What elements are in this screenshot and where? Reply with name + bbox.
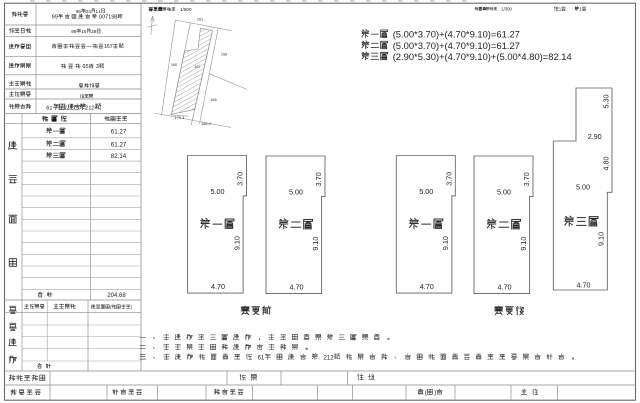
svg-text:167: 167 <box>194 65 200 69</box>
svg-text:82.14: 82.14 <box>111 153 127 160</box>
svg-text:161: 161 <box>197 17 203 21</box>
svg-text:168: 168 <box>221 53 227 57</box>
svg-text:2.90: 2.90 <box>588 132 602 141</box>
svg-text:4.80: 4.80 <box>602 157 611 171</box>
svg-text:(5.00*3.70)+(4.70*9.10)=61.27: (5.00*3.70)+(4.70*9.10)=61.27 <box>393 40 520 51</box>
svg-text:5.00: 5.00 <box>289 187 303 196</box>
svg-text:9: 9 <box>94 29 97 35</box>
svg-text:166-4: 166-4 <box>201 122 211 126</box>
svg-text:4.70: 4.70 <box>420 282 434 291</box>
svg-text:5.00: 5.00 <box>576 183 590 192</box>
svg-text:1/300: 1/300 <box>501 7 512 12</box>
svg-text:7: 7 <box>110 44 113 50</box>
svg-text:61.27: 61.27 <box>111 128 127 135</box>
svg-text:9.10: 9.10 <box>311 237 320 251</box>
svg-text:8: 8 <box>114 15 117 21</box>
svg-text:4.70: 4.70 <box>290 283 304 292</box>
svg-text:160: 160 <box>171 63 177 67</box>
svg-text:(5.00*3.70)+(4.70*9.10)=61.27: (5.00*3.70)+(4.70*9.10)=61.27 <box>393 29 520 40</box>
svg-text:3.70: 3.70 <box>314 172 323 186</box>
svg-text:9.10: 9.10 <box>597 232 606 246</box>
svg-text:9.10: 9.10 <box>519 237 528 251</box>
svg-text:9: 9 <box>55 15 58 21</box>
svg-text:): ) <box>434 390 436 397</box>
svg-text:4.70: 4.70 <box>211 282 225 291</box>
svg-text:3: 3 <box>96 64 99 70</box>
svg-text:204.68: 204.68 <box>107 293 126 299</box>
svg-text:5.00: 5.00 <box>211 187 225 196</box>
svg-text:9: 9 <box>78 9 81 15</box>
svg-text:5.30: 5.30 <box>601 95 610 109</box>
svg-text:5.00: 5.00 <box>419 187 433 196</box>
svg-text:(2.90*5.30)+(4.70*9.10)+(5.00*: (2.90*5.30)+(4.70*9.10)+(5.00*4.80)=82.1… <box>393 51 572 62</box>
svg-text:2: 2 <box>330 355 334 362</box>
svg-text:0: 0 <box>84 29 87 35</box>
svg-text:1/500: 1/500 <box>180 7 192 12</box>
svg-text:5: 5 <box>86 64 89 70</box>
svg-text:9.10: 9.10 <box>232 236 241 250</box>
svg-text:3.70: 3.70 <box>445 172 454 186</box>
svg-text:9: 9 <box>74 29 77 35</box>
svg-text:5.00: 5.00 <box>497 187 511 196</box>
svg-text:4.70: 4.70 <box>498 283 512 292</box>
svg-text:166: 166 <box>210 98 216 102</box>
svg-text:3.70: 3.70 <box>522 172 531 186</box>
svg-text:9.10: 9.10 <box>441 236 450 250</box>
svg-text:179-4: 179-4 <box>175 116 185 120</box>
svg-text:1: 1 <box>261 355 265 362</box>
svg-text:4.70: 4.70 <box>577 281 591 290</box>
svg-text:3.70: 3.70 <box>236 172 245 186</box>
svg-text:61.27: 61.27 <box>111 141 127 148</box>
svg-text:4: 4 <box>88 9 91 15</box>
